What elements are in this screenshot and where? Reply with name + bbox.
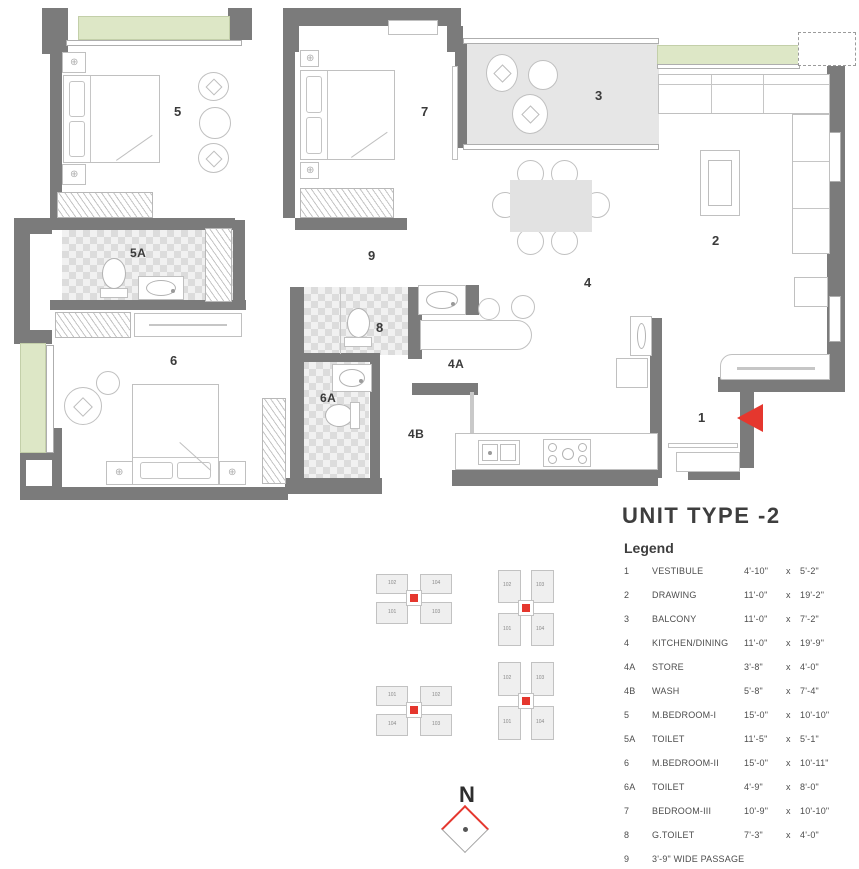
- room-label-6: 6: [170, 353, 178, 368]
- chair: [198, 143, 229, 173]
- shoe-rack: [668, 443, 738, 448]
- wall: [292, 353, 380, 362]
- shower-partition: [340, 288, 341, 354]
- wall: [290, 287, 304, 480]
- unit-marker: [522, 697, 530, 705]
- bed-room5: [63, 75, 160, 163]
- legend-row: 4BWASH5'-8"x7'-4": [624, 686, 856, 696]
- wc-bowl: [325, 404, 353, 427]
- bed-room7: [300, 70, 395, 160]
- wall: [412, 383, 478, 395]
- washbasin: [138, 276, 184, 300]
- room-label-4: 4: [584, 275, 592, 290]
- tv-bench: [720, 354, 830, 380]
- dining-table: [510, 180, 592, 232]
- north-label: N: [448, 782, 486, 808]
- balcony-chair: [512, 94, 548, 134]
- sofa: [792, 114, 830, 254]
- balcony-chair: [486, 54, 518, 92]
- unit-marker: [410, 706, 418, 714]
- door-panel: [452, 66, 458, 160]
- wall: [228, 8, 252, 40]
- room-label-5: 5: [174, 104, 182, 119]
- sofa: [658, 74, 830, 114]
- ledge-dashed: [798, 32, 856, 66]
- room-label-7: 7: [421, 104, 429, 119]
- side-table: ⊕: [62, 164, 86, 185]
- legend-row: 1VESTIBULE4'-10"x5'-2": [624, 566, 856, 576]
- washbasin: [332, 364, 372, 392]
- legend-row: 93'-9" WIDE PASSAGE: [624, 854, 856, 864]
- balcony-slider: [463, 38, 659, 44]
- wardrobe: [300, 188, 394, 218]
- dining-chair: [517, 228, 544, 255]
- key-plan: 102 103 101 104: [498, 570, 554, 646]
- room-label-5a: 5A: [130, 246, 146, 260]
- wall: [233, 220, 245, 306]
- pier-inset: [26, 460, 52, 486]
- chair: [198, 72, 229, 101]
- wc-bowl: [102, 258, 126, 289]
- washing-machine: [616, 358, 648, 388]
- wall: [283, 38, 295, 218]
- north-compass-dot: [463, 827, 468, 832]
- wc-toilet: [100, 288, 128, 298]
- planter-strip: [657, 45, 800, 65]
- key-plan: 101 102 104 103: [376, 686, 452, 736]
- coffee-table: [700, 150, 740, 216]
- unit-marker: [522, 604, 530, 612]
- wc-toilet: [350, 402, 360, 429]
- window: [657, 64, 800, 69]
- dresser: [55, 312, 131, 338]
- legend-heading: Legend: [624, 540, 674, 556]
- side-table: ⊕: [62, 52, 86, 73]
- fridge: [630, 316, 652, 356]
- room-label-3: 3: [595, 88, 603, 103]
- wall: [295, 218, 407, 230]
- round-table: [199, 107, 231, 139]
- chair: [64, 387, 102, 425]
- window: [46, 345, 54, 453]
- wall: [465, 285, 479, 315]
- room-label-1: 1: [698, 410, 706, 425]
- wall: [14, 330, 52, 344]
- console-table: [134, 313, 242, 337]
- legend-row: 3BALCONY11'-0"x7'-2": [624, 614, 856, 624]
- planter-strip: [20, 343, 46, 453]
- window: [829, 296, 841, 342]
- legend-row: 4ASTORE3'-8"x4'-0": [624, 662, 856, 672]
- legend-row: 2DRAWING11'-0"x19'-2": [624, 590, 856, 600]
- washbasin: [418, 285, 466, 315]
- wall: [452, 470, 658, 486]
- balcony-slider: [463, 144, 659, 150]
- wc-bowl: [347, 308, 370, 338]
- stove: [543, 439, 591, 467]
- wc-toilet: [344, 337, 372, 347]
- dining-chair: [551, 228, 578, 255]
- wall: [285, 478, 382, 494]
- window: [66, 40, 242, 46]
- wardrobe: [57, 192, 153, 218]
- planter-strip: [78, 16, 230, 40]
- balcony-table: [528, 60, 558, 90]
- round-table: [96, 371, 120, 395]
- wall: [14, 218, 52, 234]
- side-table: ⊕: [106, 461, 133, 485]
- room-label-6a: 6A: [320, 391, 336, 405]
- room-label-4a: 4A: [448, 357, 464, 371]
- stool: [511, 295, 535, 319]
- wardrobe: [262, 398, 286, 484]
- stool: [478, 298, 500, 320]
- breakfast-counter: [420, 320, 532, 350]
- side-table: ⊕: [300, 50, 319, 67]
- key-plan: 102 104 101 103: [376, 574, 452, 624]
- legend-row: 6M.BEDROOM-II15'-0"x10'-11": [624, 758, 856, 768]
- legend-row: 7BEDROOM-III10'-9"x10'-10": [624, 806, 856, 816]
- room-label-8: 8: [376, 320, 384, 335]
- wall: [20, 487, 288, 500]
- legend-row: 8G.TOILET7'-3"x4'-0": [624, 830, 856, 840]
- floorplan-canvas: ⊕ ⊕ ⊕ ⊕: [0, 0, 859, 869]
- room-label-2: 2: [712, 233, 720, 248]
- entry-arrow-icon: [737, 404, 763, 432]
- wall: [14, 234, 30, 334]
- wardrobe: [205, 228, 232, 302]
- legend-row: 5M.BEDROOM-I15'-0"x10'-10": [624, 710, 856, 720]
- page-title: UNIT TYPE -2: [622, 503, 781, 529]
- shelf: [388, 20, 438, 35]
- bed-room6: [132, 384, 219, 485]
- legend-row: 5ATOILET11'-5"x5'-1": [624, 734, 856, 744]
- side-table: ⊕: [219, 461, 246, 485]
- key-plan: 102 103 101 104: [498, 662, 554, 740]
- entry-step: [676, 452, 740, 472]
- legend-row: 6ATOILET4'-9"x8'-0": [624, 782, 856, 792]
- side-table: [794, 277, 828, 307]
- legend-row: 4KITCHEN/DINING11'-0"x19'-9": [624, 638, 856, 648]
- unit-marker: [410, 594, 418, 602]
- side-table: ⊕: [300, 162, 319, 179]
- kitchen-sink: [478, 440, 520, 465]
- room-label-9: 9: [368, 248, 376, 263]
- window: [829, 132, 841, 182]
- room-label-4b: 4B: [408, 427, 424, 441]
